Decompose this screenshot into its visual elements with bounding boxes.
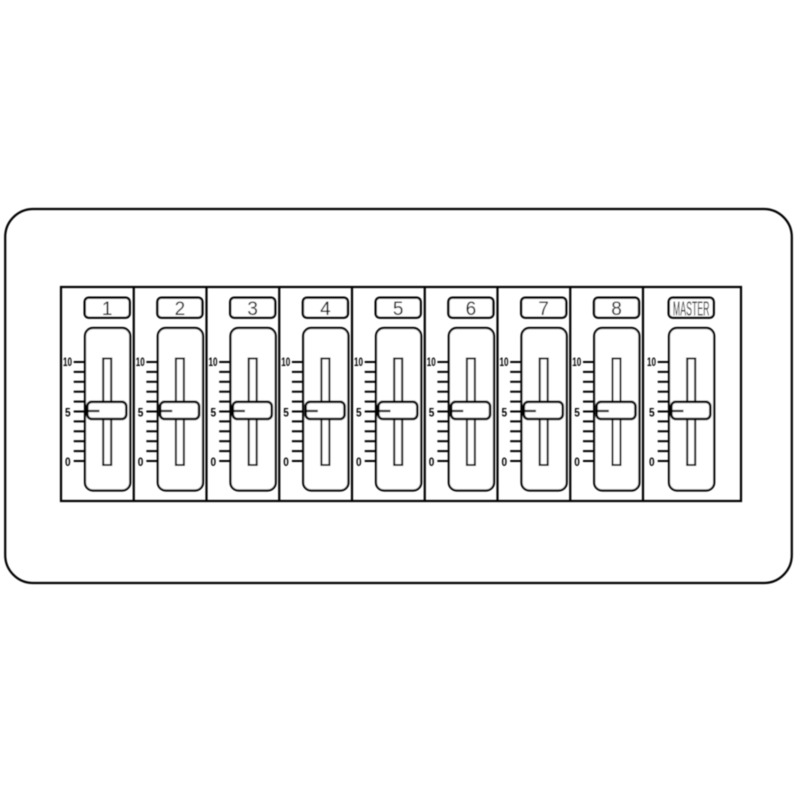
svg-text:0: 0 bbox=[138, 455, 144, 469]
svg-text:5: 5 bbox=[502, 405, 508, 419]
svg-text:0: 0 bbox=[211, 455, 217, 469]
svg-text:7: 7 bbox=[538, 299, 549, 320]
svg-text:5: 5 bbox=[211, 405, 217, 419]
svg-text:3: 3 bbox=[247, 299, 258, 320]
svg-text:5: 5 bbox=[356, 405, 362, 419]
svg-text:4: 4 bbox=[320, 299, 331, 320]
svg-text:10: 10 bbox=[63, 355, 72, 369]
svg-text:10: 10 bbox=[572, 355, 581, 369]
svg-text:10: 10 bbox=[281, 355, 290, 369]
svg-text:2: 2 bbox=[175, 299, 186, 320]
svg-text:0: 0 bbox=[429, 455, 435, 469]
svg-text:10: 10 bbox=[500, 355, 509, 369]
svg-text:5: 5 bbox=[429, 405, 435, 419]
svg-text:0: 0 bbox=[65, 455, 71, 469]
svg-text:10: 10 bbox=[427, 355, 436, 369]
svg-text:5: 5 bbox=[65, 405, 71, 419]
svg-text:5: 5 bbox=[138, 405, 144, 419]
svg-text:10: 10 bbox=[354, 355, 363, 369]
svg-text:0: 0 bbox=[502, 455, 508, 469]
svg-text:0: 0 bbox=[283, 455, 289, 469]
svg-text:0: 0 bbox=[574, 455, 580, 469]
svg-text:5: 5 bbox=[393, 299, 404, 320]
svg-text:0: 0 bbox=[356, 455, 362, 469]
svg-text:10: 10 bbox=[647, 355, 656, 369]
svg-text:10: 10 bbox=[209, 355, 218, 369]
svg-text:6: 6 bbox=[466, 299, 477, 320]
svg-text:1: 1 bbox=[102, 299, 113, 320]
svg-text:5: 5 bbox=[283, 405, 289, 419]
svg-text:0: 0 bbox=[649, 455, 655, 469]
svg-text:5: 5 bbox=[574, 405, 580, 419]
svg-text:8: 8 bbox=[611, 299, 622, 320]
svg-text:10: 10 bbox=[136, 355, 145, 369]
svg-text:MASTER: MASTER bbox=[673, 298, 710, 320]
svg-text:5: 5 bbox=[649, 405, 655, 419]
